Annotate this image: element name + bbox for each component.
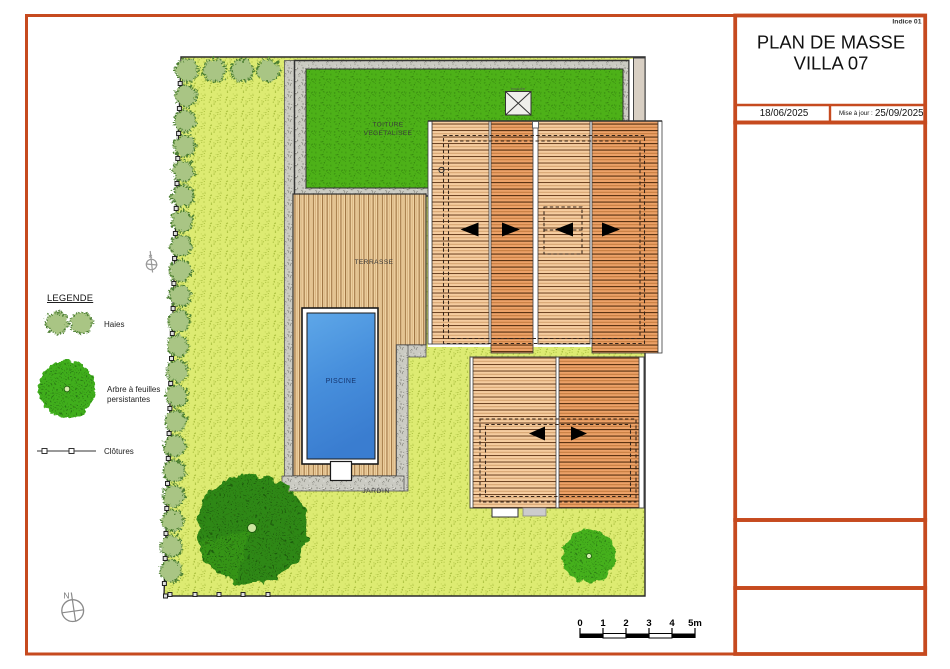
- svg-text:PLAN DE MASSE: PLAN DE MASSE: [757, 32, 905, 53]
- svg-text:3: 3: [646, 618, 651, 629]
- svg-text:LEGENDE: LEGENDE: [47, 292, 93, 303]
- svg-text:persistantes: persistantes: [107, 395, 150, 404]
- svg-text:Mise à jour :: Mise à jour :: [839, 110, 873, 117]
- svg-text:PISCINE: PISCINE: [326, 378, 357, 385]
- svg-text:5m: 5m: [688, 618, 702, 629]
- svg-text:exutoire: exutoire: [511, 86, 526, 91]
- svg-text:Arbre à feuilles: Arbre à feuilles: [107, 385, 160, 394]
- svg-text:N: N: [63, 591, 69, 601]
- svg-text:TOITURE: TOITURE: [372, 122, 403, 129]
- svg-text:JARDIN: JARDIN: [362, 488, 390, 495]
- svg-text:25/09/2025: 25/09/2025: [875, 108, 924, 119]
- svg-text:0: 0: [577, 618, 582, 629]
- svg-text:VILLA 07: VILLA 07: [794, 53, 869, 74]
- svg-text:2: 2: [623, 618, 628, 629]
- svg-text:TERRASSE: TERRASSE: [354, 259, 393, 266]
- svg-text:Clôtures: Clôtures: [104, 447, 134, 456]
- svg-text:VEGETALISEE: VEGETALISEE: [364, 130, 413, 137]
- svg-text:1: 1: [600, 618, 606, 629]
- svg-text:4: 4: [669, 618, 675, 629]
- svg-text:Haies: Haies: [104, 320, 124, 329]
- svg-text:Indice 01: Indice 01: [892, 19, 921, 26]
- svg-text:18/06/2025: 18/06/2025: [760, 108, 809, 119]
